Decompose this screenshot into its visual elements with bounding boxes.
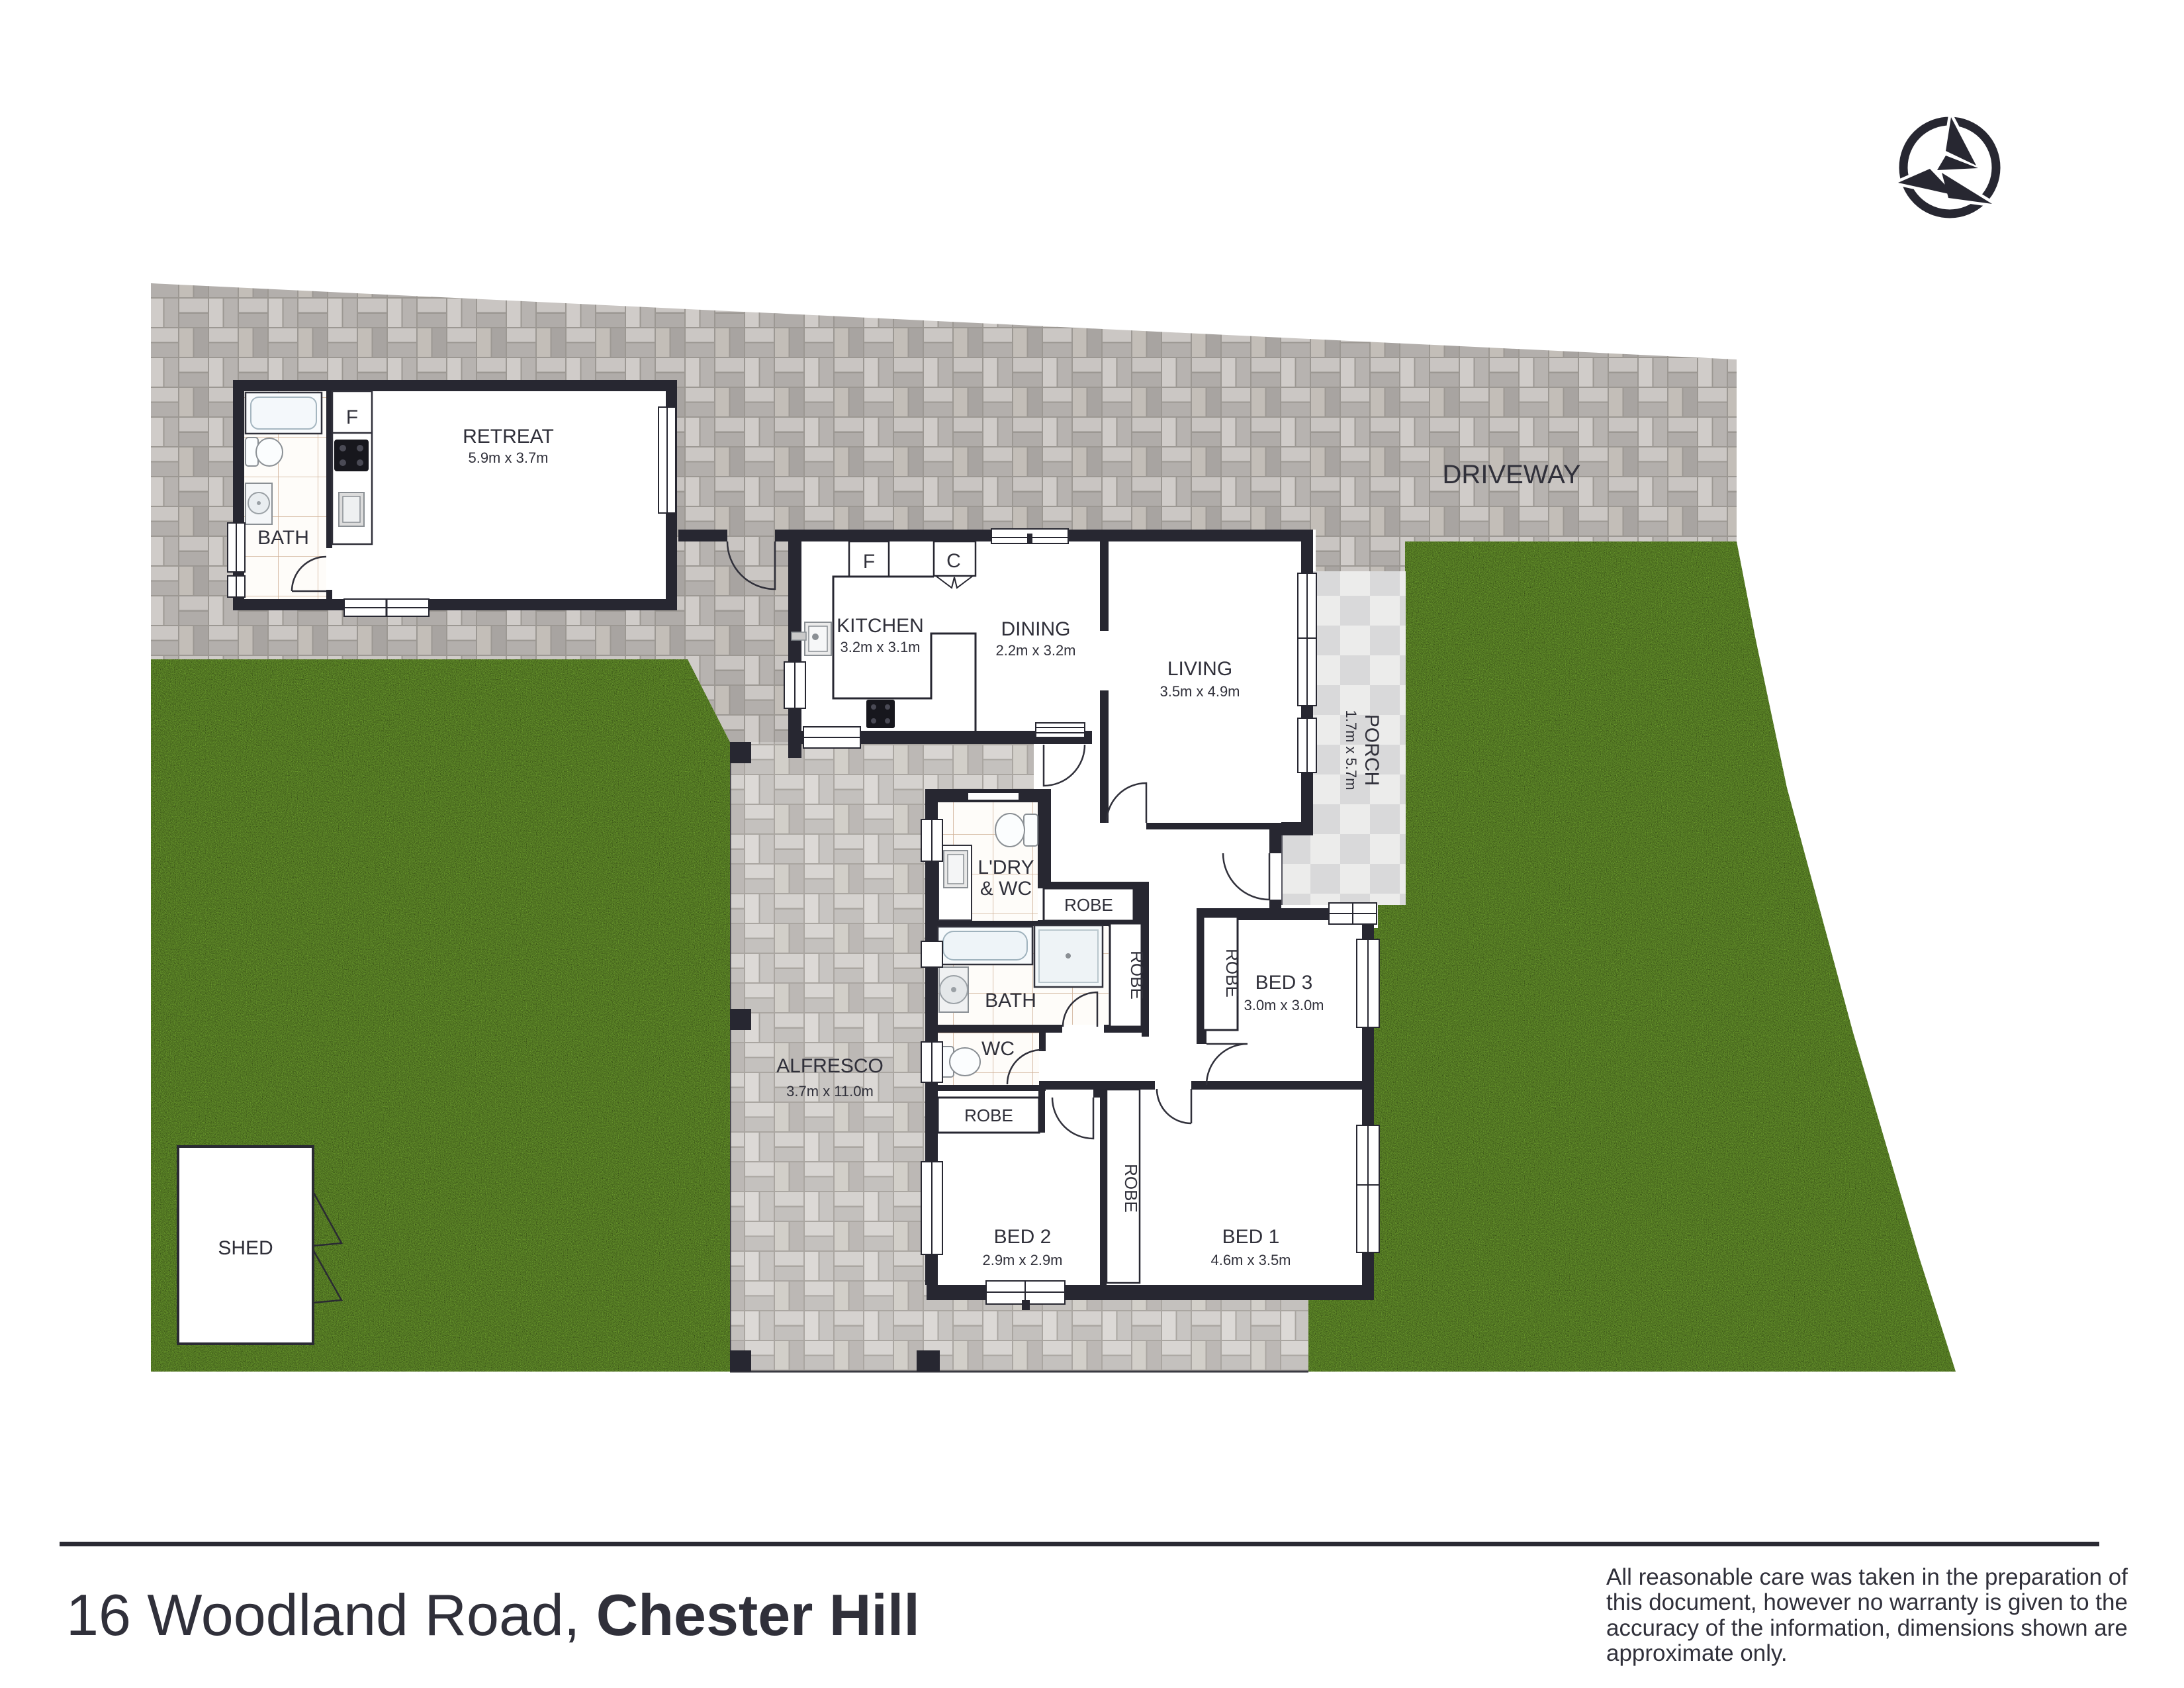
svg-text:BED 2: BED 2 (994, 1226, 1052, 1248)
svg-text:2.2m x 3.2m: 2.2m x 3.2m (995, 642, 1075, 659)
svg-text:2.9m x 2.9m: 2.9m x 2.9m (982, 1252, 1062, 1268)
svg-text:DRIVEWAY: DRIVEWAY (1443, 460, 1581, 489)
svg-text:approximate only.: approximate only. (1606, 1640, 1788, 1666)
svg-text:PORCH: PORCH (1361, 714, 1383, 786)
svg-text:4.6m x 3.5m: 4.6m x 3.5m (1210, 1252, 1291, 1268)
svg-text:3.0m x 3.0m: 3.0m x 3.0m (1244, 997, 1324, 1013)
svg-text:this document, however no warr: this document, however no warranty is gi… (1606, 1589, 2128, 1615)
svg-text:accuracy of the information, d: accuracy of the information, dimensions … (1606, 1615, 2128, 1641)
svg-text:KITCHEN: KITCHEN (837, 615, 924, 637)
svg-text:1.7m x 5.7m: 1.7m x 5.7m (1343, 710, 1359, 790)
svg-text:ROBE: ROBE (1127, 951, 1147, 1000)
svg-text:BED 1: BED 1 (1222, 1226, 1280, 1248)
svg-text:ROBE: ROBE (1121, 1164, 1141, 1213)
svg-text:SHED: SHED (218, 1237, 273, 1259)
svg-text:RETREAT: RETREAT (463, 426, 554, 447)
svg-text:L'DRY: L'DRY (978, 857, 1034, 878)
svg-text:BED 3: BED 3 (1255, 972, 1313, 994)
svg-text:F: F (346, 406, 358, 428)
svg-text:ROBE: ROBE (1222, 949, 1242, 998)
svg-text:3.7m x 11.0m: 3.7m x 11.0m (786, 1083, 874, 1100)
svg-text:ROBE: ROBE (964, 1105, 1013, 1125)
svg-text:3.5m x 4.9m: 3.5m x 4.9m (1160, 683, 1240, 700)
svg-text:ALFRESCO: ALFRESCO (776, 1055, 884, 1077)
svg-text:& WC: & WC (980, 878, 1032, 900)
svg-text:BATH: BATH (257, 527, 309, 549)
svg-text:All reasonable care was taken: All reasonable care was taken in the pre… (1606, 1564, 2128, 1590)
svg-text:LIVING: LIVING (1167, 658, 1232, 680)
svg-text:WC: WC (981, 1038, 1015, 1060)
svg-text:16 Woodland Road, Chester Hill: 16 Woodland Road, Chester Hill (66, 1582, 920, 1648)
svg-text:5.9m x 3.7m: 5.9m x 3.7m (468, 449, 548, 466)
svg-text:F: F (863, 551, 875, 573)
svg-text:3.2m x 3.1m: 3.2m x 3.1m (840, 639, 920, 655)
svg-text:DINING: DINING (1001, 618, 1071, 640)
svg-text:BATH: BATH (985, 990, 1036, 1011)
svg-text:ROBE: ROBE (1064, 895, 1113, 915)
svg-text:C: C (946, 550, 961, 572)
